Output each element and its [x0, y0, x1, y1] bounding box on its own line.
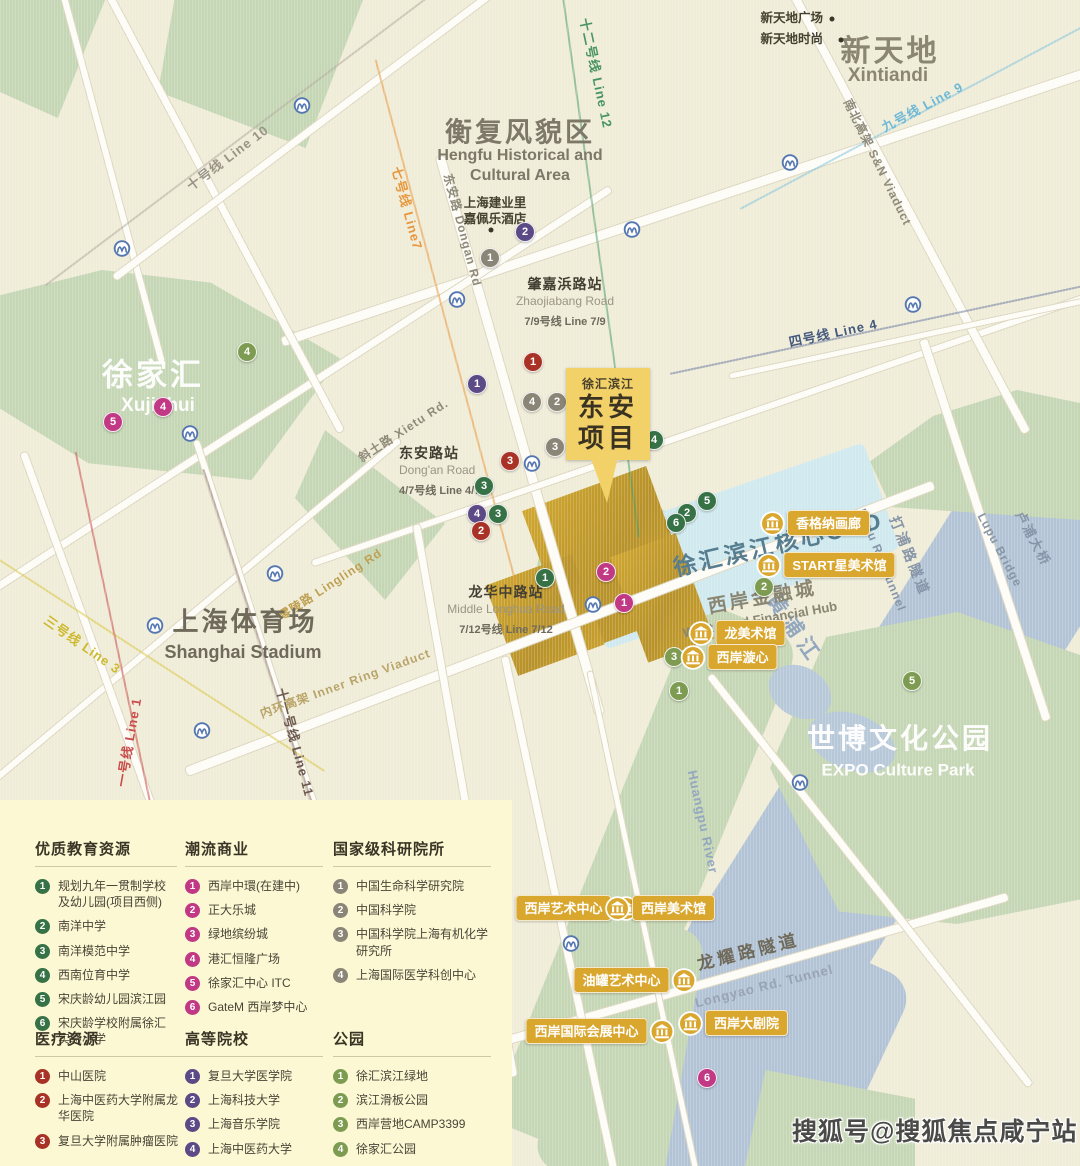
legend-section-6: 公园1徐汇滨江绿地2滨江滑板公园3西岸营地CAMP33994徐家汇公园5世博文化…	[333, 1028, 491, 1166]
legend-item: 1中国生命科学研究院	[333, 878, 491, 894]
legend-item-label: 中山医院	[58, 1068, 106, 1084]
metro-station-icon	[194, 722, 211, 744]
museum-marker: 西岸大剧院	[678, 1010, 788, 1036]
poi-label: 新天地时尚	[760, 31, 823, 47]
station-label-middle-longhua-road-station: 龙华中路站Middle Longhua Road7/12号线 Line 7/12	[447, 582, 564, 637]
legend-item: 4西南位育中学	[35, 967, 177, 983]
legend-item-label: 徐家汇公园	[356, 1141, 416, 1157]
legend-item-badge: 4	[333, 968, 348, 983]
legend-item: 5宋庆龄幼儿园滨江园	[35, 991, 177, 1007]
metro-station-icon	[585, 596, 602, 618]
map-badge: 6	[697, 1068, 717, 1088]
metro-station-icon	[267, 565, 284, 587]
legend-item: 4港汇恒隆广场	[185, 951, 323, 967]
metro-station-icon	[147, 617, 164, 639]
map-badge: 4	[237, 342, 257, 362]
map-badge: 3	[545, 437, 565, 457]
area-label-expo-culture-park: 世博文化公园	[807, 717, 993, 757]
legend-item-label: 港汇恒隆广场	[208, 951, 280, 967]
road-label: 东安路 Dongan Rd	[440, 172, 487, 289]
museum-marker: 西岸国际会展中心	[525, 1018, 674, 1044]
legend-item-label: 南洋中学	[58, 918, 106, 934]
map-badge: 3	[500, 451, 520, 471]
station-name-en: Dong'an Road	[399, 463, 480, 477]
legend-item-label: 滨江滑板公园	[356, 1092, 428, 1108]
metro-station-icon	[294, 97, 311, 119]
station-name-en: Zhaojiabang Road	[516, 294, 614, 308]
legend-item-label: 复旦大学医学院	[208, 1068, 292, 1084]
museum-marker: 香格纳画廊	[760, 510, 870, 536]
legend-item-label: 西岸中環(在建中)	[208, 878, 300, 894]
museum-icon	[672, 968, 697, 993]
legend-item-label: 中国生命科学研究院	[356, 878, 464, 894]
legend-item-badge: 3	[35, 1134, 50, 1149]
poi-dot	[830, 17, 835, 22]
legend-item-label: 规划九年一贯制学校及幼儿园(项目西侧)	[58, 878, 177, 910]
legend-item: 3中国科学院上海有机化学研究所	[333, 926, 491, 958]
area-label-xintiandi-en: Xintiandi	[848, 64, 928, 88]
area-label-shanghai-stadium: 上海体育场	[172, 602, 317, 639]
museum-marker-label: 西岸漩心	[707, 644, 777, 670]
map-badge: 1	[467, 374, 487, 394]
legend-item: 3绿地缤纷城	[185, 926, 323, 942]
legend-item: 2正大乐城	[185, 902, 323, 918]
legend-section-2: 潮流商业1西岸中環(在建中)2正大乐城3绿地缤纷城4港汇恒隆广场5徐家汇中心 I…	[185, 838, 323, 1023]
metro-station-icon	[905, 296, 922, 318]
project-callout-title-line2: 项目	[570, 423, 646, 454]
legend-item: 3上海音乐学院	[185, 1116, 323, 1132]
map-badge: 6	[666, 513, 686, 533]
map-badge: 1	[480, 248, 500, 268]
museum-marker-label: 龙美术馆	[715, 620, 785, 646]
station-label-dongan-road-station: 东安路站Dong'an Road4/7号线 Line 4/7	[399, 443, 480, 498]
area-label-hengfu-en: Hengfu Historical and Cultural Area	[437, 146, 602, 186]
legend-item: 3复旦大学附属肿瘤医院	[35, 1133, 185, 1149]
map-badge: 1	[614, 593, 634, 613]
legend-item: 1复旦大学医学院	[185, 1068, 323, 1084]
legend-item: 5徐家汇中心 ITC	[185, 975, 323, 991]
legend-item-badge: 1	[333, 879, 348, 894]
legend-item: 4徐家汇公园	[333, 1141, 491, 1157]
legend-section-title: 高等院校	[185, 1028, 323, 1057]
legend-panel: 优质教育资源1规划九年一贯制学校及幼儿园(项目西侧)2南洋中学3南洋模范中学4西…	[0, 800, 512, 1166]
legend-item: 1徐汇滨江绿地	[333, 1068, 491, 1084]
station-name-en: Middle Longhua Road	[447, 602, 564, 616]
legend-item-badge: 5	[185, 976, 200, 991]
map-badge: 5	[902, 671, 922, 691]
legend-item-badge: 5	[35, 992, 50, 1007]
legend-item: 1中山医院	[35, 1068, 185, 1084]
poi-label: 新天地广场	[760, 10, 823, 26]
legend-section-3: 国家级科研院所1中国生命科学研究院2中国科学院3中国科学院上海有机化学研究所4上…	[333, 838, 491, 991]
legend-item-label: 上海中医药大学	[208, 1141, 292, 1157]
metro-station-icon	[563, 935, 580, 957]
watermark: 搜狐号@搜狐焦点咸宁站	[792, 1112, 1077, 1148]
area-label-hengfu: 衡复风貌区	[445, 111, 595, 150]
legend-item-label: 西岸营地CAMP3399	[356, 1116, 465, 1132]
station-name: 东安路站	[399, 443, 480, 463]
museum-marker: START星美术馆	[756, 552, 895, 578]
museum-icon	[688, 621, 713, 646]
legend-item-badge: 1	[185, 879, 200, 894]
metro-station-icon	[524, 455, 541, 477]
legend-item-badge: 2	[333, 903, 348, 918]
legend-section-4: 医疗资源1中山医院2上海中医药大学附属龙华医院3复旦大学附属肿瘤医院	[35, 1028, 185, 1157]
map-badge: 3	[474, 476, 494, 496]
legend-item: 1西岸中環(在建中)	[185, 878, 323, 894]
map-badge: 4	[153, 397, 173, 417]
museum-marker-label: START星美术馆	[783, 552, 895, 578]
legend-section-title: 医疗资源	[35, 1028, 185, 1057]
legend-item-badge: 4	[185, 1142, 200, 1157]
legend-item: 2中国科学院	[333, 902, 491, 918]
legend-item-label: 宋庆龄幼儿园滨江园	[58, 991, 166, 1007]
legend-item-badge: 4	[35, 968, 50, 983]
legend-item-badge: 1	[333, 1069, 348, 1084]
legend-item: 2上海中医药大学附属龙华医院	[35, 1092, 185, 1124]
legend-item-badge: 1	[35, 879, 50, 894]
legend-item: 4上海中医药大学	[185, 1141, 323, 1157]
museum-icon	[680, 645, 705, 670]
legend-item-badge: 3	[35, 944, 50, 959]
map-badge: 5	[697, 491, 717, 511]
legend-item-badge: 4	[185, 952, 200, 967]
station-lines: 7/9号线 Line 7/9	[516, 313, 614, 329]
legend-section-title: 国家级科研院所	[333, 838, 491, 867]
legend-item-badge: 2	[333, 1093, 348, 1108]
legend-section-title: 公园	[333, 1028, 491, 1057]
project-callout: 徐汇滨江 东安 项目	[566, 368, 650, 460]
project-callout-title-line1: 东安	[570, 392, 646, 423]
station-label-zhaojiabang-road-station: 肇嘉浜路站Zhaojiabang Road7/9号线 Line 7/9	[516, 274, 614, 329]
area-label-expo-culture-park-en: EXPO Culture Park	[821, 759, 974, 780]
poi-dot	[489, 228, 494, 233]
map-canvas: 新天地Xintiandi衡复风貌区Hengfu Historical and C…	[0, 0, 1080, 1166]
museum-marker: 西岸漩心	[680, 644, 777, 670]
legend-item: 3南洋模范中学	[35, 943, 177, 959]
area-label-shanghai-stadium-en: Shanghai Stadium	[164, 641, 321, 664]
map-badge: 1	[523, 352, 543, 372]
museum-marker-label: 香格纳画廊	[787, 510, 870, 536]
legend-item-badge: 2	[185, 903, 200, 918]
map-badge: 2	[754, 577, 774, 597]
legend-item: 2上海科技大学	[185, 1092, 323, 1108]
legend-item: 4上海国际医学科创中心	[333, 967, 491, 983]
metro-station-icon	[114, 240, 131, 262]
museum-marker-label: 西岸国际会展中心	[525, 1018, 647, 1044]
map-badge: 2	[547, 392, 567, 412]
legend-item-badge: 2	[35, 919, 50, 934]
museum-marker: 西岸美术馆	[605, 895, 715, 921]
legend-item-badge: 2	[185, 1093, 200, 1108]
area-label-xujiahui: 徐家汇	[102, 350, 204, 395]
station-lines: 7/12号线 Line 7/12	[447, 621, 564, 637]
museum-marker-label: 油罐艺术中心	[573, 967, 669, 993]
map-badge: 2	[596, 562, 616, 582]
station-lines: 4/7号线 Line 4/7	[399, 482, 480, 498]
legend-item: 6GateM 西岸梦中心	[185, 999, 323, 1015]
map-badge: 1	[669, 681, 689, 701]
legend-item: 2南洋中学	[35, 918, 177, 934]
museum-icon	[756, 553, 781, 578]
legend-section-title: 潮流商业	[185, 838, 323, 867]
legend-item-label: 正大乐城	[208, 902, 256, 918]
legend-item-badge: 3	[185, 927, 200, 942]
legend-item-badge: 3	[333, 1117, 348, 1132]
legend-item-label: 徐汇滨江绿地	[356, 1068, 428, 1084]
legend-item-label: 中国科学院上海有机化学研究所	[356, 926, 491, 958]
legend-item-label: 上海国际医学科创中心	[356, 967, 476, 983]
museum-marker-label: 西岸艺术中心	[515, 895, 611, 921]
metro-station-icon	[182, 425, 199, 447]
legend-item-badge: 3	[333, 927, 348, 942]
museum-marker: 龙美术馆	[688, 620, 785, 646]
legend-item-label: 上海科技大学	[208, 1092, 280, 1108]
legend-item-label: 南洋模范中学	[58, 943, 130, 959]
map-badge: 4	[522, 392, 542, 412]
metro-station-icon	[449, 291, 466, 313]
legend-section-5: 高等院校1复旦大学医学院2上海科技大学3上海音乐学院4上海中医药大学	[185, 1028, 323, 1165]
legend-item-badge: 6	[185, 1000, 200, 1015]
metro-station-icon	[782, 154, 799, 176]
museum-marker-label: 西岸美术馆	[632, 895, 715, 921]
legend-item-label: 上海中医药大学附属龙华医院	[58, 1092, 185, 1124]
legend-item-label: 绿地缤纷城	[208, 926, 268, 942]
museum-marker: 油罐艺术中心	[573, 967, 696, 993]
metro-station-icon	[792, 774, 809, 796]
map-badge: 2	[515, 222, 535, 242]
legend-item: 1规划九年一贯制学校及幼儿园(项目西侧)	[35, 878, 177, 910]
legend-item-label: 中国科学院	[356, 902, 416, 918]
legend-item-badge: 1	[35, 1069, 50, 1084]
museum-marker-label: 西岸大剧院	[705, 1010, 788, 1036]
map-badge: 2	[471, 521, 491, 541]
legend-item: 3西岸营地CAMP3399	[333, 1116, 491, 1132]
legend-item: 2滨江滑板公园	[333, 1092, 491, 1108]
legend-item-badge: 2	[35, 1093, 50, 1108]
map-badge: 3	[488, 504, 508, 524]
legend-item-badge: 4	[333, 1142, 348, 1157]
poi-dot	[839, 38, 844, 43]
legend-item-label: 复旦大学附属肿瘤医院	[58, 1133, 178, 1149]
legend-section-1: 优质教育资源1规划九年一贯制学校及幼儿园(项目西侧)2南洋中学3南洋模范中学4西…	[35, 838, 177, 1056]
legend-item-label: GateM 西岸梦中心	[208, 999, 307, 1015]
station-name: 肇嘉浜路站	[516, 274, 614, 294]
map-badge: 5	[103, 412, 123, 432]
legend-item-badge: 3	[185, 1117, 200, 1132]
museum-icon	[650, 1019, 675, 1044]
museum-icon	[760, 511, 785, 536]
museum-icon	[678, 1011, 703, 1036]
metro-line-label: 七号线 Line7	[388, 164, 429, 252]
metro-station-icon	[624, 221, 641, 243]
museum-icon	[605, 896, 630, 921]
poi-label: 上海建业里 嘉佩乐酒店	[464, 195, 527, 228]
project-callout-subtitle: 徐汇滨江	[570, 375, 646, 392]
legend-item-label: 上海音乐学院	[208, 1116, 280, 1132]
legend-item-label: 徐家汇中心 ITC	[208, 975, 291, 991]
legend-item-badge: 1	[185, 1069, 200, 1084]
map-badge: 1	[535, 568, 555, 588]
legend-section-title: 优质教育资源	[35, 838, 177, 867]
legend-item-label: 西南位育中学	[58, 967, 130, 983]
